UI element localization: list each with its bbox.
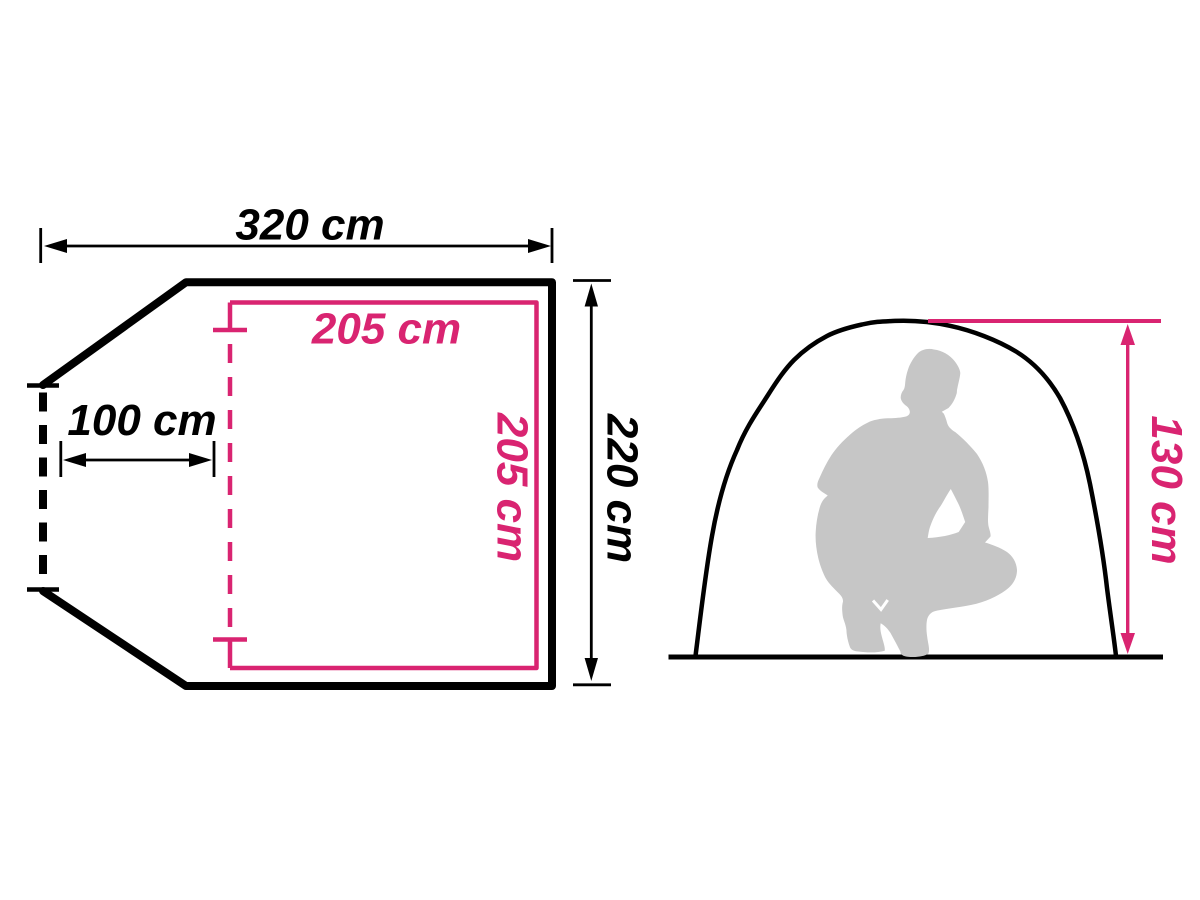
svg-text:205 cm: 205 cm bbox=[487, 412, 536, 562]
svg-text:220 cm: 220 cm bbox=[597, 413, 646, 563]
svg-text:205 cm: 205 cm bbox=[311, 305, 461, 354]
svg-text:100 cm: 100 cm bbox=[67, 396, 216, 445]
svg-text:130 cm: 130 cm bbox=[1142, 415, 1191, 564]
svg-text:320 cm: 320 cm bbox=[235, 201, 384, 250]
